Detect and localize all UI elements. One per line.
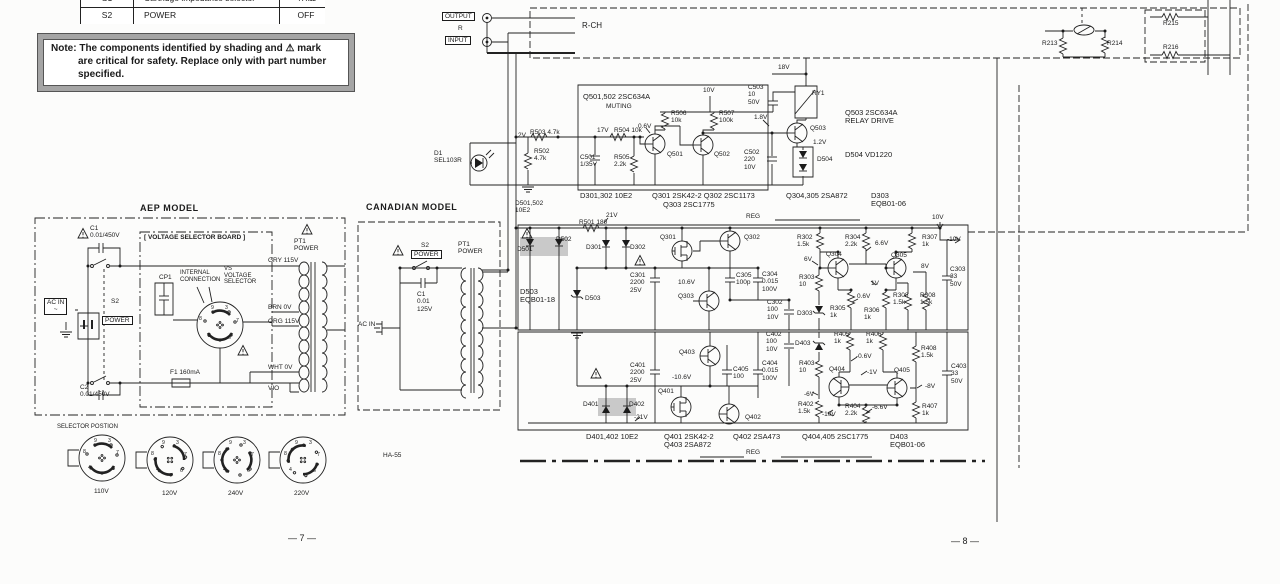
r405-label: R405 1k — [834, 331, 850, 346]
schematic-page: S1 Cartridge impedance selector 47kΩ S2 … — [0, 0, 1280, 584]
q503-type: Q503 2SC634A RELAY DRIVE — [845, 109, 898, 126]
d110-digit-9: 9 — [94, 439, 97, 445]
io-r-label: R — [458, 25, 463, 32]
c302-label: C302 100 10V — [767, 299, 783, 321]
q403-label: Q403 — [679, 349, 695, 356]
v-6v: 6V — [804, 256, 812, 263]
c403-label: C403 33 50V — [951, 363, 967, 385]
selector-position-title: SELECTOR POSTION — [57, 424, 118, 431]
d303-label: D303 — [797, 310, 813, 317]
v-6p6: 6.6V — [875, 240, 888, 247]
safety-shading — [520, 237, 636, 416]
r308b-label: R308 1.5k — [920, 292, 936, 307]
table-cell: POWER — [134, 8, 280, 24]
r302-label: R302 1.5k — [797, 234, 813, 249]
v-m10-top: -10V — [947, 236, 961, 243]
r404-label: R404 2.2k — [845, 403, 861, 418]
r402-label: R402 1.5k — [798, 401, 814, 416]
note-line: are critical for safety. Replace only wi… — [51, 56, 343, 69]
q502-label: Q502 — [714, 151, 730, 158]
d303-type: D303 EQB01-06 — [871, 192, 906, 209]
d120-digit-6: 6 — [180, 469, 183, 475]
q302-label: Q302 — [744, 234, 760, 241]
d120-digit-8: 8 — [151, 452, 154, 458]
c303-label: C303 33 50V — [950, 266, 966, 288]
rch-label: R-CH — [582, 22, 602, 31]
r406-label: R406 1k — [866, 331, 882, 346]
table-cell: Cartridge impedance selector — [134, 0, 280, 7]
d401-402-type: D401,402 10E2 — [586, 433, 638, 441]
dial-220v-label: 220V — [294, 490, 309, 497]
table-cell: S2 — [81, 8, 134, 24]
d502-label: D502 — [556, 236, 572, 243]
c503-label: C503 10 50V — [748, 84, 764, 106]
d120-digit-9: 9 — [162, 441, 165, 447]
dial-240v-label: 240V — [228, 490, 243, 497]
d403-label: D403 — [795, 340, 811, 347]
d220-digit-3: 3 — [309, 441, 312, 447]
q303-type: Q303 2SC1775 — [663, 201, 715, 209]
d301-label: D301 — [586, 244, 602, 251]
d120-digit-3: 3 — [176, 441, 179, 447]
d110-digit-6: 6 — [112, 467, 115, 473]
v-m21: -21V — [634, 414, 648, 421]
d240-digit-4: 4 — [223, 468, 226, 474]
r303-label: R303 10 — [799, 274, 815, 289]
s2-aep-label: S2 — [111, 298, 119, 305]
r507-label: R507 100k — [719, 110, 735, 125]
vs-digit-6: 6 — [228, 336, 231, 342]
page-number-left: — 7 — — [288, 533, 316, 543]
vs-digit-2: 2 — [208, 334, 211, 340]
tap-vio: VIO — [268, 385, 279, 392]
ha55-label: HA-55 — [383, 452, 401, 459]
power-aep-label: POWER — [102, 316, 133, 325]
v-1p8: 1.8V — [754, 114, 767, 121]
muting-circuit — [516, 58, 817, 192]
d401-label: D401 — [583, 401, 599, 408]
c304-label: C304 0.015 100V — [762, 271, 778, 293]
c1-can-label: C1 0.01 125V — [417, 291, 432, 313]
c2-aep-label: C2 0.01/450V — [80, 384, 110, 399]
s2-can-label: S2 — [421, 242, 429, 249]
c402-label: C402 100 10V — [766, 331, 782, 353]
d110-digit-7: 7 — [116, 451, 119, 457]
tap-org: ORG 115V — [268, 318, 299, 325]
c501-label: C501 1/35V — [580, 154, 597, 169]
pt1-aep-label: PT1 POWER — [294, 238, 319, 253]
d1-led — [471, 150, 494, 171]
d403-type: D403 EQB01-06 — [890, 433, 925, 450]
power-can-label: POWER — [411, 250, 442, 259]
v-10v-out: 10V — [932, 214, 944, 221]
r308a-label: R308 1.5k — [893, 292, 909, 307]
table-cell: 47kΩ — [280, 0, 325, 7]
q404-405-type: Q404,405 2SC1775 — [802, 433, 868, 441]
output-label: OUTPUT — [442, 12, 475, 21]
v-m6p6: -6.6V — [872, 404, 888, 411]
table-cell: S1 — [81, 0, 134, 7]
acin-aep-label: AC IN ~ — [44, 298, 67, 315]
dial-110v-label: 110V — [94, 488, 109, 495]
r408-label: R408 1.5k — [921, 345, 937, 360]
d501-502-type: D501,502 10E2 — [515, 200, 543, 215]
internal-connection-label: INTERNAL CONNECTION — [180, 270, 220, 283]
r501-label: R501 180 — [579, 219, 607, 226]
r215-label: R215 — [1163, 20, 1179, 27]
d110-digit-4: 4 — [88, 466, 91, 472]
d110-digit-8: 8 — [83, 450, 86, 456]
q301-label: Q301 — [660, 234, 676, 241]
d1-label: D1 SEL103R — [434, 150, 462, 165]
note-line: Note: The components identified by shadi… — [51, 43, 343, 56]
page-number-right: — 8 — — [951, 536, 979, 546]
q501-label: Q501 — [667, 151, 683, 158]
v-0p6-reg: 0.6V — [857, 293, 870, 300]
d501-label: D501 — [517, 246, 533, 253]
d240-digit-9: 9 — [229, 441, 232, 447]
v-1v: 1V — [871, 280, 879, 287]
canadian-model-title: CANADIAN MODEL — [366, 202, 457, 212]
q501-502-type: Q501,502 2SC634A — [583, 93, 650, 101]
v-m0p6: -0.6V — [856, 353, 872, 360]
r506-label: R506 10k — [671, 110, 687, 125]
v-m1: -1V — [867, 369, 877, 376]
d220-digit-6: 6 — [313, 469, 316, 475]
r216-label: R216 — [1163, 44, 1179, 51]
vs-digit-7: 7 — [236, 319, 239, 325]
v-m6: -6V — [804, 391, 814, 398]
q402-label: Q402 — [745, 414, 761, 421]
d120-digit-7: 7 — [184, 453, 187, 459]
vs-selector-label: VS VOLTAGE SELECTOR — [224, 266, 256, 286]
r505-label: R505 2.2k — [614, 154, 630, 169]
reg-bottom-label: REG — [746, 449, 760, 456]
c404-label: C404 0.015 100V — [762, 360, 778, 382]
c405-label: C405 100 — [733, 366, 749, 381]
v-m8: -8V — [925, 383, 935, 390]
cp1-label: CP1 — [159, 274, 172, 281]
table-cell: OFF — [280, 8, 325, 24]
canadian-power-section — [374, 246, 516, 399]
c502-label: C502 220 10V — [744, 149, 760, 171]
d220-digit-9: 9 — [295, 441, 298, 447]
r407-label: R407 1k — [922, 403, 938, 418]
d503-label: D503 — [585, 295, 601, 302]
pt1-can-label: PT1 POWER — [458, 241, 483, 256]
q404-label: Q404 — [829, 366, 845, 373]
d240-digit-8: 8 — [218, 452, 221, 458]
v-17v: 17V — [597, 127, 609, 134]
d220-digit-7: 7 — [317, 453, 320, 459]
vsb-title: [ VOLTAGE SELECTOR BOARD ] — [144, 234, 245, 241]
r306-label: R306 1k — [864, 307, 880, 322]
c301-label: C301 2200 25V — [630, 272, 646, 294]
q405-label: Q405 — [894, 367, 910, 374]
note-line: specified. — [51, 69, 343, 82]
r403-label: R403 10 — [799, 360, 815, 375]
safety-note: Note: The components identified by shadi… — [38, 34, 354, 91]
q304-305-type: Q304,305 2SA872 — [786, 192, 848, 200]
d302-label: D302 — [630, 244, 646, 251]
r214-label: R214 — [1107, 40, 1123, 47]
q401-403-type: Q401 2SK42-2 Q403 2SA872 — [664, 433, 714, 450]
v-18v: 18V — [778, 64, 790, 71]
v-2v: 2V — [518, 132, 526, 139]
reg-top-label: REG — [746, 213, 760, 220]
r213-label: R213 — [1042, 40, 1058, 47]
vs-digit-8: 8 — [199, 317, 202, 323]
d503-type: D503 EQB01-18 — [520, 288, 555, 305]
d402-label: D402 — [629, 401, 645, 408]
r503-label: R503 4.7k — [530, 129, 560, 136]
v-10p6: 10.6V — [678, 279, 695, 286]
aep-model-title: AEP MODEL — [140, 203, 199, 213]
ry1-label: RY1 — [812, 90, 825, 97]
q401-label: Q401 — [658, 388, 674, 395]
v-8v: 8V — [921, 263, 929, 270]
c401-label: C401 2200 25V — [630, 362, 646, 384]
r304-label: R304 2.2k — [845, 234, 861, 249]
dial-120v-label: 120V — [162, 490, 177, 497]
v-21v: 21V — [606, 212, 618, 219]
d504-label: D504 — [817, 156, 833, 163]
c305-label: C305 100p — [736, 272, 752, 287]
r307-label: R307 1k — [922, 234, 938, 249]
tap-brn: BRN 0V — [268, 304, 291, 311]
muting-label: MUTING — [606, 103, 632, 110]
q305-label: Q305 — [891, 252, 907, 259]
v-m10-bot: -10V — [822, 411, 836, 418]
acin-can-label: AC IN — [358, 321, 375, 328]
d240-digit-7: 7 — [251, 453, 254, 459]
vs-digit-3: 3 — [225, 306, 228, 312]
d240-digit-6: 6 — [247, 469, 250, 475]
q304-label: Q304 — [826, 251, 842, 258]
vs-digit-9: 9 — [211, 306, 214, 312]
q303-label: Q303 — [678, 293, 694, 300]
d220-digit-4: 4 — [289, 468, 292, 474]
rch-relay-contacts — [1045, 14, 1230, 59]
switch-table: S1 Cartridge impedance selector 47kΩ S2 … — [80, 0, 325, 24]
d301-302-type: D301,302 10E2 — [580, 192, 632, 200]
r502-label: R502 4.7k — [534, 148, 550, 163]
tap-wht: WHT 0V — [268, 364, 292, 371]
v-m10p6: -10.6V — [672, 374, 691, 381]
input-label: INPUT — [445, 36, 471, 45]
tap-gry: GRY 115V — [268, 257, 298, 264]
d504-type: D504 VD1220 — [845, 151, 892, 159]
v-10v-muting: 10V — [703, 87, 715, 94]
c1-aep-label: C1 0.01/450V — [90, 225, 120, 240]
d120-digit-4: 4 — [156, 468, 159, 474]
r504-label: R504 10k — [614, 127, 642, 134]
v-1p2: 1.2V — [813, 139, 826, 146]
r305-label: R305 1k — [830, 305, 846, 320]
d110-digit-3: 3 — [108, 439, 111, 445]
q402-type: Q402 2SA473 — [733, 433, 780, 441]
q503-label: Q503 — [810, 125, 826, 132]
d220-digit-8: 8 — [284, 452, 287, 458]
f1-label: F1 160mA — [170, 369, 200, 376]
d240-digit-3: 3 — [243, 441, 246, 447]
